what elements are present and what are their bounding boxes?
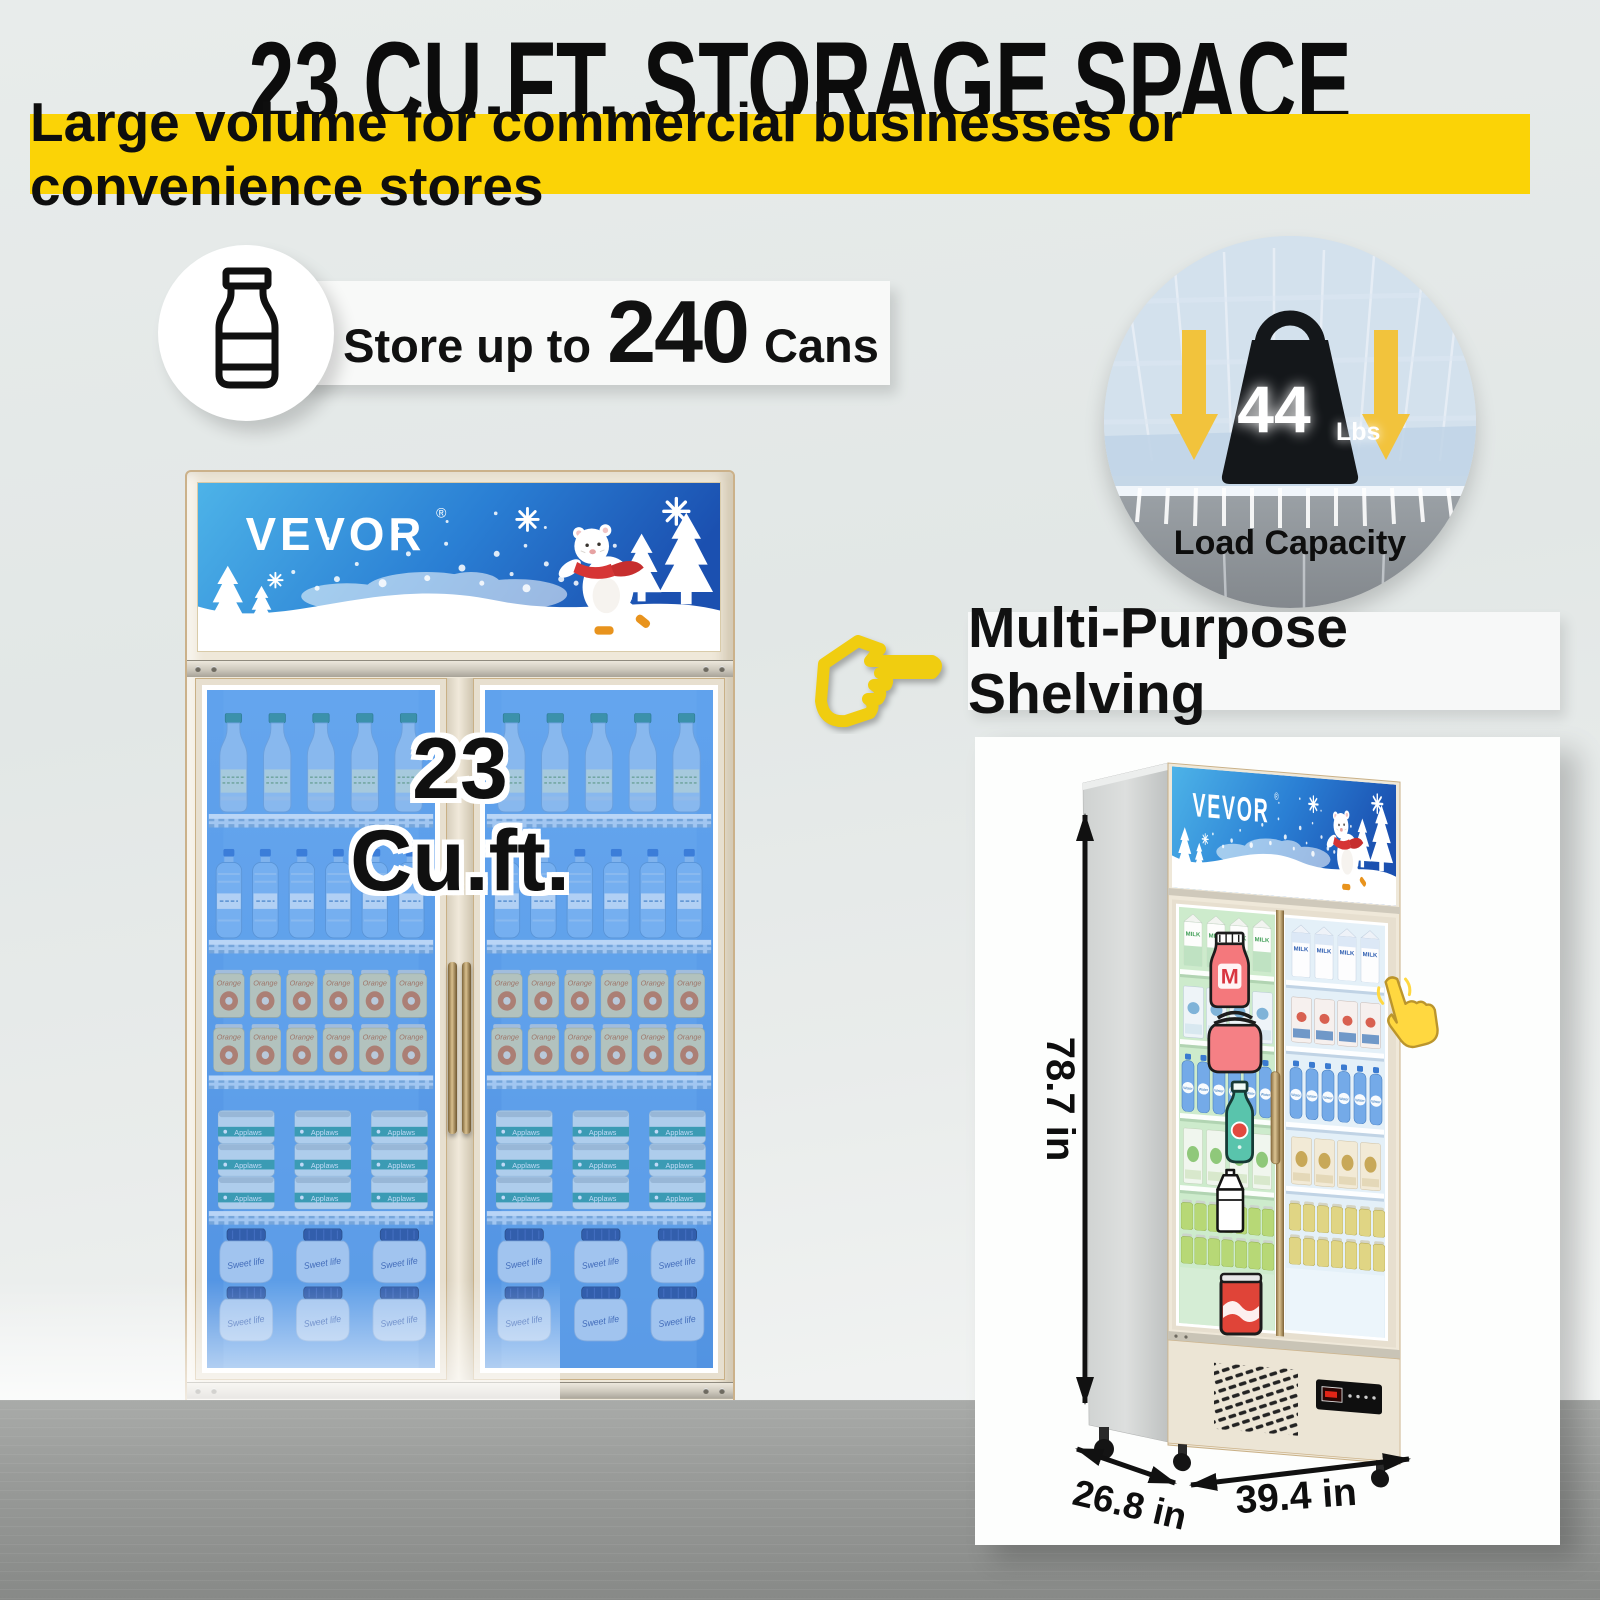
capacity-value: 23: [185, 726, 735, 812]
load-value: 44: [1237, 372, 1311, 446]
spec-door-right: [1282, 914, 1388, 1341]
spec-fridge-side-panel: [1083, 763, 1168, 1442]
spec-control-panel: [1316, 1379, 1382, 1414]
store-capacity-banner: Store up to 240 Cans: [272, 281, 890, 385]
door-handle-left: [448, 962, 457, 1134]
capacity-overlay: 23 Cu.ft.: [185, 726, 735, 904]
milk-letter: M: [1221, 963, 1239, 988]
spec-card: M: [975, 737, 1560, 1545]
capacity-unit: Cu.ft.: [185, 818, 735, 904]
load-label: Load Capacity: [1174, 524, 1406, 562]
width-label: 39.4 in: [1234, 1471, 1358, 1522]
load-capacity-badge: 44 Lbs Load Capacity: [1104, 236, 1476, 608]
door-handle-right: [462, 962, 471, 1134]
milk-carton-outline-icon: [1218, 1170, 1244, 1232]
store-suffix: Cans: [764, 318, 879, 373]
frame-strip-top: [187, 660, 733, 677]
fridge-header-art: [197, 482, 721, 652]
milk-carton-icon: M: [1211, 933, 1249, 1007]
subtitle-text: Large volume for commercial businesses o…: [30, 90, 1530, 218]
spec-vent-grille: [1214, 1363, 1298, 1436]
spec-door-handle: [1271, 1071, 1280, 1164]
store-prefix: Store up to: [343, 318, 591, 373]
height-label: 78.7 in: [1038, 1037, 1082, 1162]
wall-highlight: [0, 1280, 560, 1400]
spec-fridge-front: [1168, 763, 1400, 1489]
pointing-hand-icon: [794, 622, 950, 739]
shelving-heading-banner: Multi-Purpose Shelving: [968, 612, 1560, 710]
shelving-heading: Multi-Purpose Shelving: [968, 595, 1560, 727]
milk-bottle-icon: [158, 245, 334, 421]
marketing-page: VEVOR ® Orange: [0, 0, 1600, 1600]
store-count: 240: [607, 281, 748, 383]
soda-can-icon: [1221, 1274, 1261, 1334]
subtitle-banner: Large volume for commercial businesses o…: [30, 114, 1530, 194]
bottle-badge: [158, 245, 334, 421]
load-unit: Lbs: [1336, 418, 1380, 446]
